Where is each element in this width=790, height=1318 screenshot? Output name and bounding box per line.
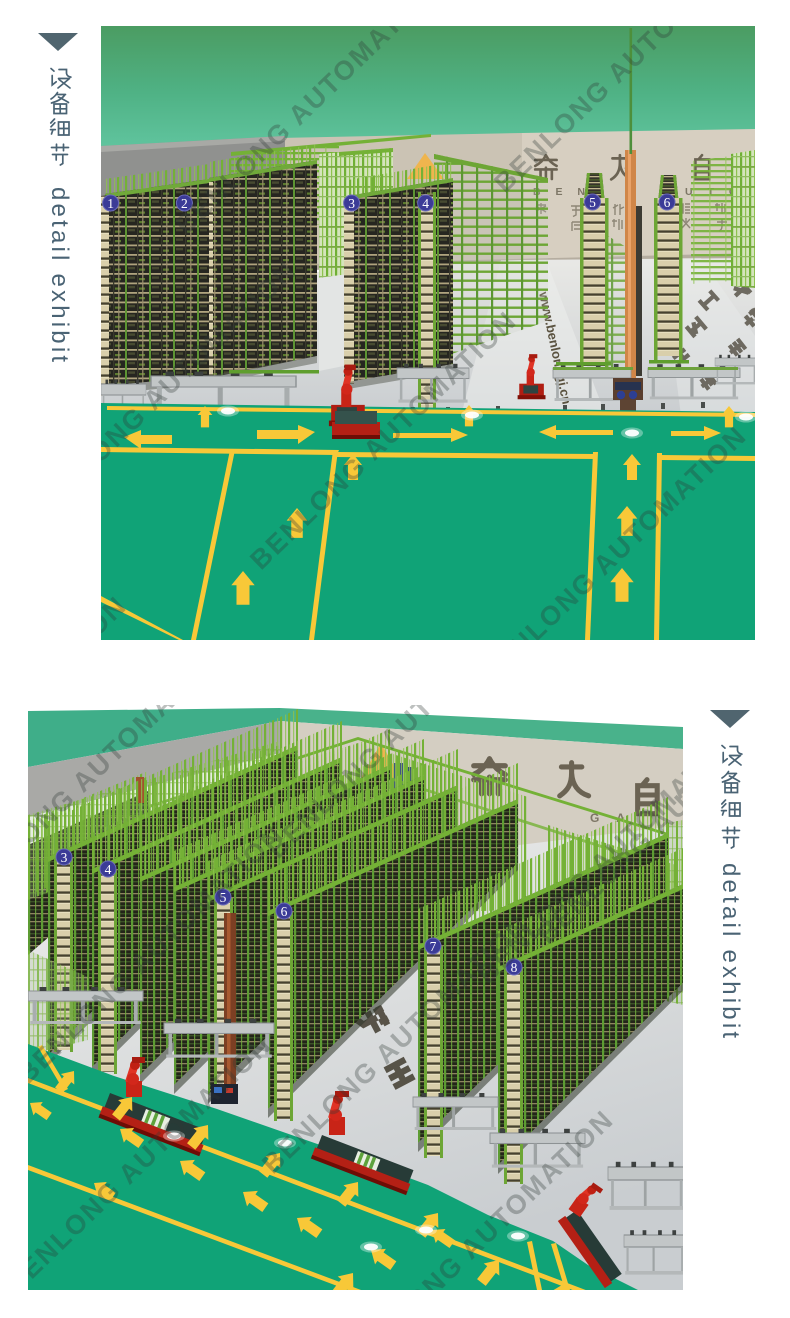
svg-text:5: 5 bbox=[589, 195, 596, 210]
svg-text:1: 1 bbox=[107, 196, 114, 211]
svg-text:3: 3 bbox=[61, 850, 68, 865]
svg-text:detail exhibit: detail exhibit bbox=[46, 187, 73, 365]
svg-text:detail exhibit: detail exhibit bbox=[717, 863, 744, 1041]
svg-text:6: 6 bbox=[281, 904, 288, 919]
svg-text:6: 6 bbox=[664, 195, 671, 210]
svg-text:7: 7 bbox=[430, 939, 437, 954]
svg-text:3: 3 bbox=[348, 196, 355, 211]
svg-text:4: 4 bbox=[422, 196, 429, 211]
svg-text:4: 4 bbox=[105, 862, 112, 877]
